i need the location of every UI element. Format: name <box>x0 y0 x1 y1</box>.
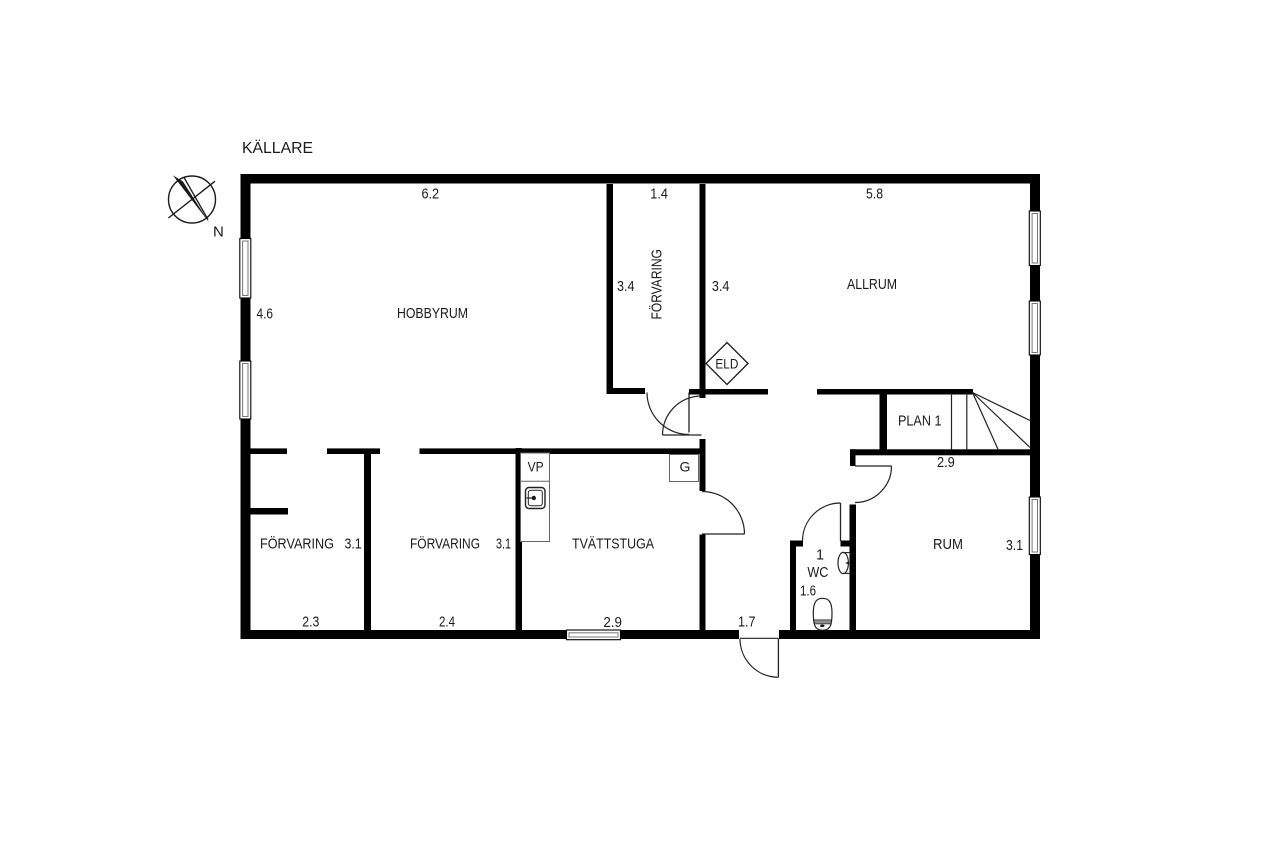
svg-text:ALLRUM: ALLRUM <box>847 276 897 293</box>
svg-text:FÖRVARING: FÖRVARING <box>648 249 666 319</box>
svg-text:2.9: 2.9 <box>603 615 622 631</box>
svg-text:1: 1 <box>816 548 824 564</box>
svg-text:1.4: 1.4 <box>650 186 668 202</box>
svg-text:2.3: 2.3 <box>302 614 319 630</box>
svg-text:VP: VP <box>528 459 544 475</box>
svg-text:5.8: 5.8 <box>866 186 883 202</box>
svg-text:G: G <box>680 459 691 475</box>
svg-text:N: N <box>213 224 224 241</box>
svg-text:2.4: 2.4 <box>439 614 455 630</box>
svg-text:4.6: 4.6 <box>257 307 274 323</box>
svg-text:3.1: 3.1 <box>1006 538 1023 554</box>
svg-text:3.4: 3.4 <box>617 279 635 295</box>
svg-text:3.4: 3.4 <box>712 279 730 295</box>
svg-text:ELD: ELD <box>715 355 738 371</box>
svg-text:FÖRVARING: FÖRVARING <box>260 535 334 553</box>
svg-text:KÄLLARE: KÄLLARE <box>242 140 313 157</box>
svg-text:6.2: 6.2 <box>422 186 440 202</box>
svg-text:3.1: 3.1 <box>345 537 362 553</box>
svg-text:WC: WC <box>807 565 828 581</box>
svg-text:1.6: 1.6 <box>800 583 816 599</box>
svg-text:1.7: 1.7 <box>738 615 756 631</box>
svg-text:HOBBYRUM: HOBBYRUM <box>397 305 468 322</box>
svg-text:RUM: RUM <box>933 536 963 553</box>
svg-text:FÖRVARING: FÖRVARING <box>410 535 480 553</box>
svg-text:3.1: 3.1 <box>496 537 511 553</box>
svg-text:PLAN 1: PLAN 1 <box>898 413 942 430</box>
svg-text:2.9: 2.9 <box>937 455 955 471</box>
svg-text:TVÄTTSTUGA: TVÄTTSTUGA <box>572 536 654 553</box>
